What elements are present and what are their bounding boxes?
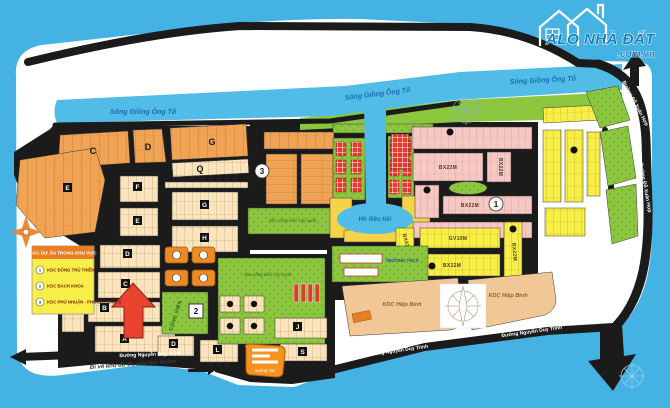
block-l-square: L: [216, 347, 220, 354]
block-d3-square: D: [171, 341, 176, 348]
logo-domain: .com.vn: [617, 49, 655, 60]
block-d2-square: D: [125, 251, 130, 258]
block-q-label: Q: [196, 164, 203, 174]
river-label-1: Sông Giồng Ông Tố: [110, 107, 177, 116]
planning-map: C D G Q E F E G H khu công viên cây xanh…: [0, 0, 670, 408]
legend-item-2: KDC BÁCH KHOA: [47, 284, 84, 289]
marker-2: 2: [194, 307, 199, 316]
thcs-label: TRƯỜNG THCS: [386, 258, 419, 263]
legend-item-1: KDC ĐÔNG THỦ THIÊM: [47, 268, 95, 273]
map-canvas: C D G Q E F E G H khu công viên cây xanh…: [0, 0, 670, 408]
block-f-square: F: [136, 184, 140, 191]
kdc-hiep-binh-left: KDC Hiệp Bình: [382, 302, 422, 308]
block-j-square: J: [296, 324, 300, 331]
marker-1: 1: [494, 200, 499, 209]
school-label: trường học: [255, 368, 276, 373]
park-label-1: khu công viên cây xanh: [269, 218, 317, 223]
legend-title: CÁC DỰ ÁN TRONG KHU VỰC: [30, 250, 98, 256]
pink-bx22m-2: BX22M: [497, 158, 503, 176]
block-h-square: H: [202, 235, 207, 242]
block-d-label: D: [145, 142, 152, 152]
block-g2-square: G: [202, 202, 207, 209]
kdc-hiep-binh-right: KDC Hiệp Bình: [488, 293, 528, 299]
park-label-2: khu công viên cây xanh: [244, 272, 292, 277]
block-c2-square: C: [123, 281, 128, 288]
lake-label: Hồ điều tiết: [359, 216, 392, 223]
block-e2-square: E: [135, 218, 140, 225]
block-e-square: E: [65, 185, 70, 192]
legend-item-3: KDC PHÚ NHUẬN - PHƯỚC LONG B: [47, 300, 121, 305]
marker-3: 3: [260, 167, 265, 176]
logo-title: ALO NHÀ ĐẤT: [545, 30, 656, 48]
block-s-square: S: [300, 349, 305, 356]
pink-bx22m-1: BX22M: [439, 165, 457, 171]
school-icon: trường học: [246, 344, 286, 377]
block-b-square: B: [102, 305, 107, 312]
yellow-gv10m: GV10M: [449, 236, 467, 242]
school-thcs: TRƯỜNG THCS: [332, 246, 428, 282]
canal-top: [364, 102, 386, 206]
block-c-label: C: [90, 146, 97, 156]
block-g-label: G: [208, 137, 215, 147]
pink-bx22m-3: BX22M: [461, 203, 479, 209]
yellow-bx22m-1: BX22M: [443, 263, 461, 269]
